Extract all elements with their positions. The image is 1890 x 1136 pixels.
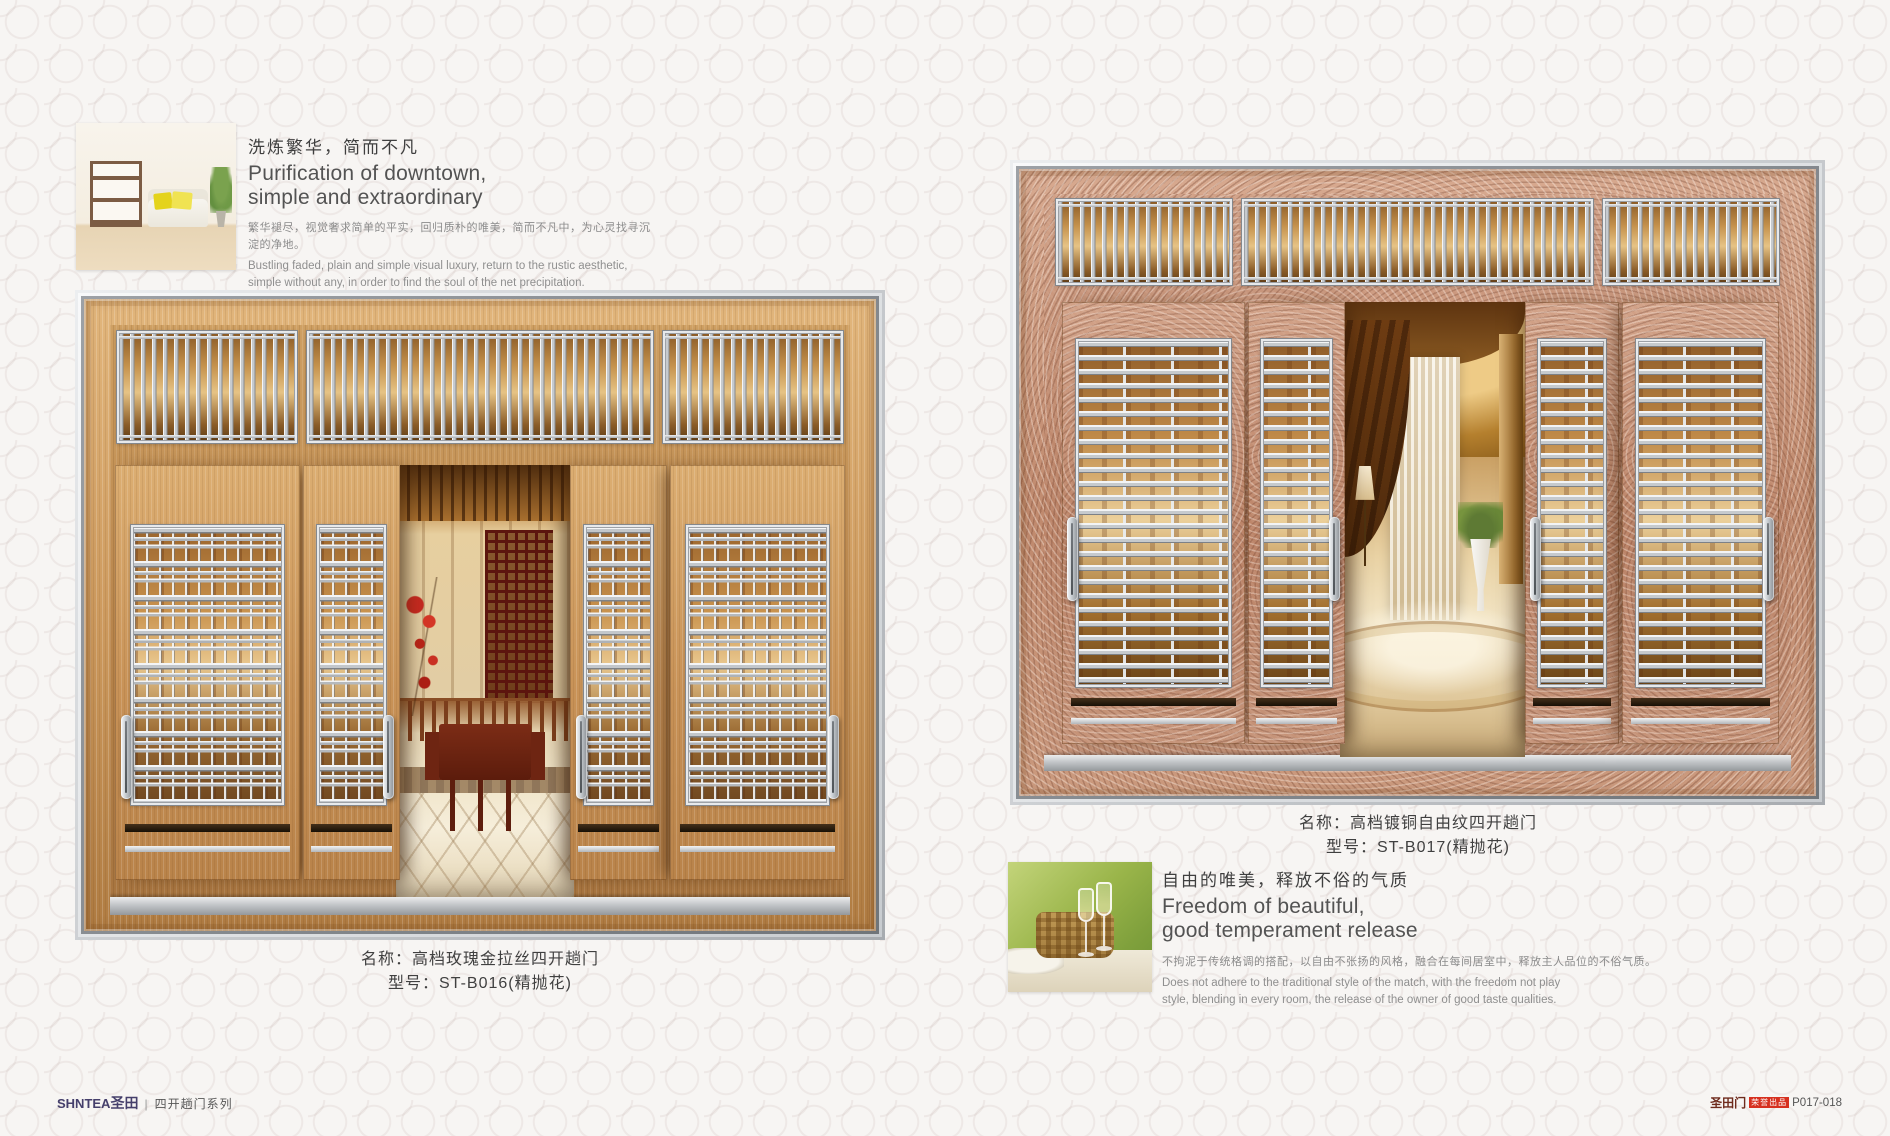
scene-table-chairs	[439, 724, 532, 780]
door-st-b017	[1010, 160, 1825, 805]
door-handle	[576, 715, 587, 799]
scene-ceiling	[396, 465, 574, 521]
panel-grille	[584, 525, 653, 805]
transom-grille-right	[1603, 199, 1779, 285]
panel-grille	[1538, 339, 1606, 687]
panel-grille	[1076, 339, 1231, 687]
transom-grille-center	[1242, 199, 1593, 285]
panel-stripe-light	[125, 846, 290, 852]
scene-floor-medallion	[1340, 621, 1525, 712]
caption-name: 名称：高档玫瑰金拉丝四开趟门	[255, 948, 705, 972]
scene-red-flowers	[401, 577, 447, 715]
feature-photo-wine	[1008, 862, 1152, 992]
intro-title-cn: 洗炼繁华，简而不凡	[248, 133, 718, 158]
panel-grille	[1261, 339, 1332, 687]
panel-stripe-light	[1256, 718, 1337, 724]
panel-grille	[1636, 339, 1765, 687]
photo-wine-glass	[1076, 888, 1096, 966]
door-handle	[1067, 517, 1078, 601]
caption-st-b017: 名称：高档镀铜自由纹四开趟门 型号：ST-B017(精抛花)	[1193, 812, 1643, 860]
feature-para-cn: 不拘泥于传统格调的搭配，以自由不张扬的风格，融合在每间居室中，释放主人品位的不俗…	[1162, 954, 1702, 971]
door-interior	[1044, 194, 1791, 771]
feature-title-cn: 自由的唯美，释放不俗的气质	[1162, 866, 1722, 891]
feature-title-en: Freedom of beautiful, good temperament r…	[1162, 895, 1722, 942]
caption-name: 名称：高档镀铜自由纹四开趟门	[1193, 812, 1643, 836]
door-handle	[1530, 517, 1541, 601]
scene-floor-lamp	[1353, 466, 1377, 566]
door-sill-track	[1044, 755, 1791, 771]
footer-series-label: 四开趟门系列	[155, 1097, 233, 1111]
transom-grille-left	[117, 331, 297, 443]
panel-grille	[317, 525, 386, 805]
panel-stripe-dark	[1071, 698, 1236, 706]
panel-stripe-light	[680, 846, 835, 852]
caption-model: 型号：ST-B017(精抛花)	[1193, 836, 1643, 860]
catalog-page: { "left_section": { "intro": { "title_cn…	[0, 0, 1890, 1136]
door-panel-3	[1525, 302, 1619, 744]
photo-pillow	[153, 192, 173, 210]
door-sill-track	[110, 897, 850, 915]
door-panel-1	[115, 465, 300, 880]
door-handle	[383, 715, 394, 799]
footer-brand-right: 圣田门	[1710, 1094, 1746, 1111]
panel-stripe-light	[1071, 718, 1236, 724]
interior-scene-hall	[1340, 302, 1525, 757]
caption-model: 型号：ST-B016(精抛花)	[255, 972, 705, 996]
panel-stripe-light	[1533, 718, 1611, 724]
intro-photo-livingroom	[76, 123, 236, 270]
panel-stripe-light	[311, 846, 392, 852]
door-panel-3	[570, 465, 667, 880]
door-panel-4	[1622, 302, 1779, 744]
panel-stripe-light	[1631, 718, 1770, 724]
door-interior	[110, 325, 850, 915]
intro-para-cn: 繁华褪尽，视觉奢求简单的平实，回归质朴的唯美，简而不凡中，为心灵找寻沉淀的净地。	[248, 220, 660, 254]
brand-logo: SHNTEA圣田	[57, 1096, 138, 1111]
panel-stripe-dark	[1533, 698, 1611, 706]
panel-stripe-dark	[578, 824, 659, 832]
door-handle	[1329, 517, 1340, 601]
panel-stripe-light	[578, 846, 659, 852]
panel-stripe-dark	[125, 824, 290, 832]
door-panel-2	[1248, 302, 1345, 744]
footer-page-info: 圣田门 荣誉出品 P017-018	[1710, 1094, 1842, 1111]
door-panel-1	[1062, 302, 1245, 744]
panel-stripe-dark	[1631, 698, 1770, 706]
footer-divider: |	[138, 1097, 154, 1111]
photo-pillow	[171, 191, 192, 210]
panel-stripe-dark	[311, 824, 392, 832]
feature-text-block: 自由的唯美，释放不俗的气质 Freedom of beautiful, good…	[1162, 866, 1722, 1008]
footer-badge: 荣誉出品	[1749, 1097, 1789, 1108]
photo-pot	[216, 211, 226, 227]
interior-scene-chinese-room	[396, 465, 574, 897]
door-st-b016	[75, 290, 885, 940]
panel-grille	[131, 525, 284, 805]
transom-grille-center	[307, 331, 653, 443]
footer-page-number: P017-018	[1792, 1097, 1842, 1109]
door-panel-2	[303, 465, 400, 880]
door-handle	[121, 715, 132, 799]
panel-grille	[686, 525, 829, 805]
feature-para-en: Does not adhere to the traditional style…	[1162, 975, 1722, 1008]
door-handle	[828, 715, 839, 799]
transom-grille-left	[1056, 199, 1232, 285]
intro-text-block: 洗炼繁华，简而不凡 Purification of downtown, simp…	[248, 133, 718, 291]
intro-para-en: Bustling faded, plain and simple visual …	[248, 258, 718, 291]
door-handle	[1763, 517, 1774, 601]
photo-plant	[210, 167, 232, 213]
intro-title-en: Purification of downtown, simple and ext…	[248, 162, 718, 209]
scene-lattice-screen	[485, 530, 553, 703]
footer-brand-series: SHNTEA圣田|四开趟门系列	[57, 1093, 233, 1113]
panel-stripe-dark	[1256, 698, 1337, 706]
caption-st-b016: 名称：高档玫瑰金拉丝四开趟门 型号：ST-B016(精抛花)	[255, 948, 705, 996]
panel-stripe-dark	[680, 824, 835, 832]
door-panel-4	[670, 465, 845, 880]
photo-shelf	[90, 161, 142, 227]
transom-grille-right	[663, 331, 843, 443]
photo-wine-glass	[1094, 882, 1114, 960]
